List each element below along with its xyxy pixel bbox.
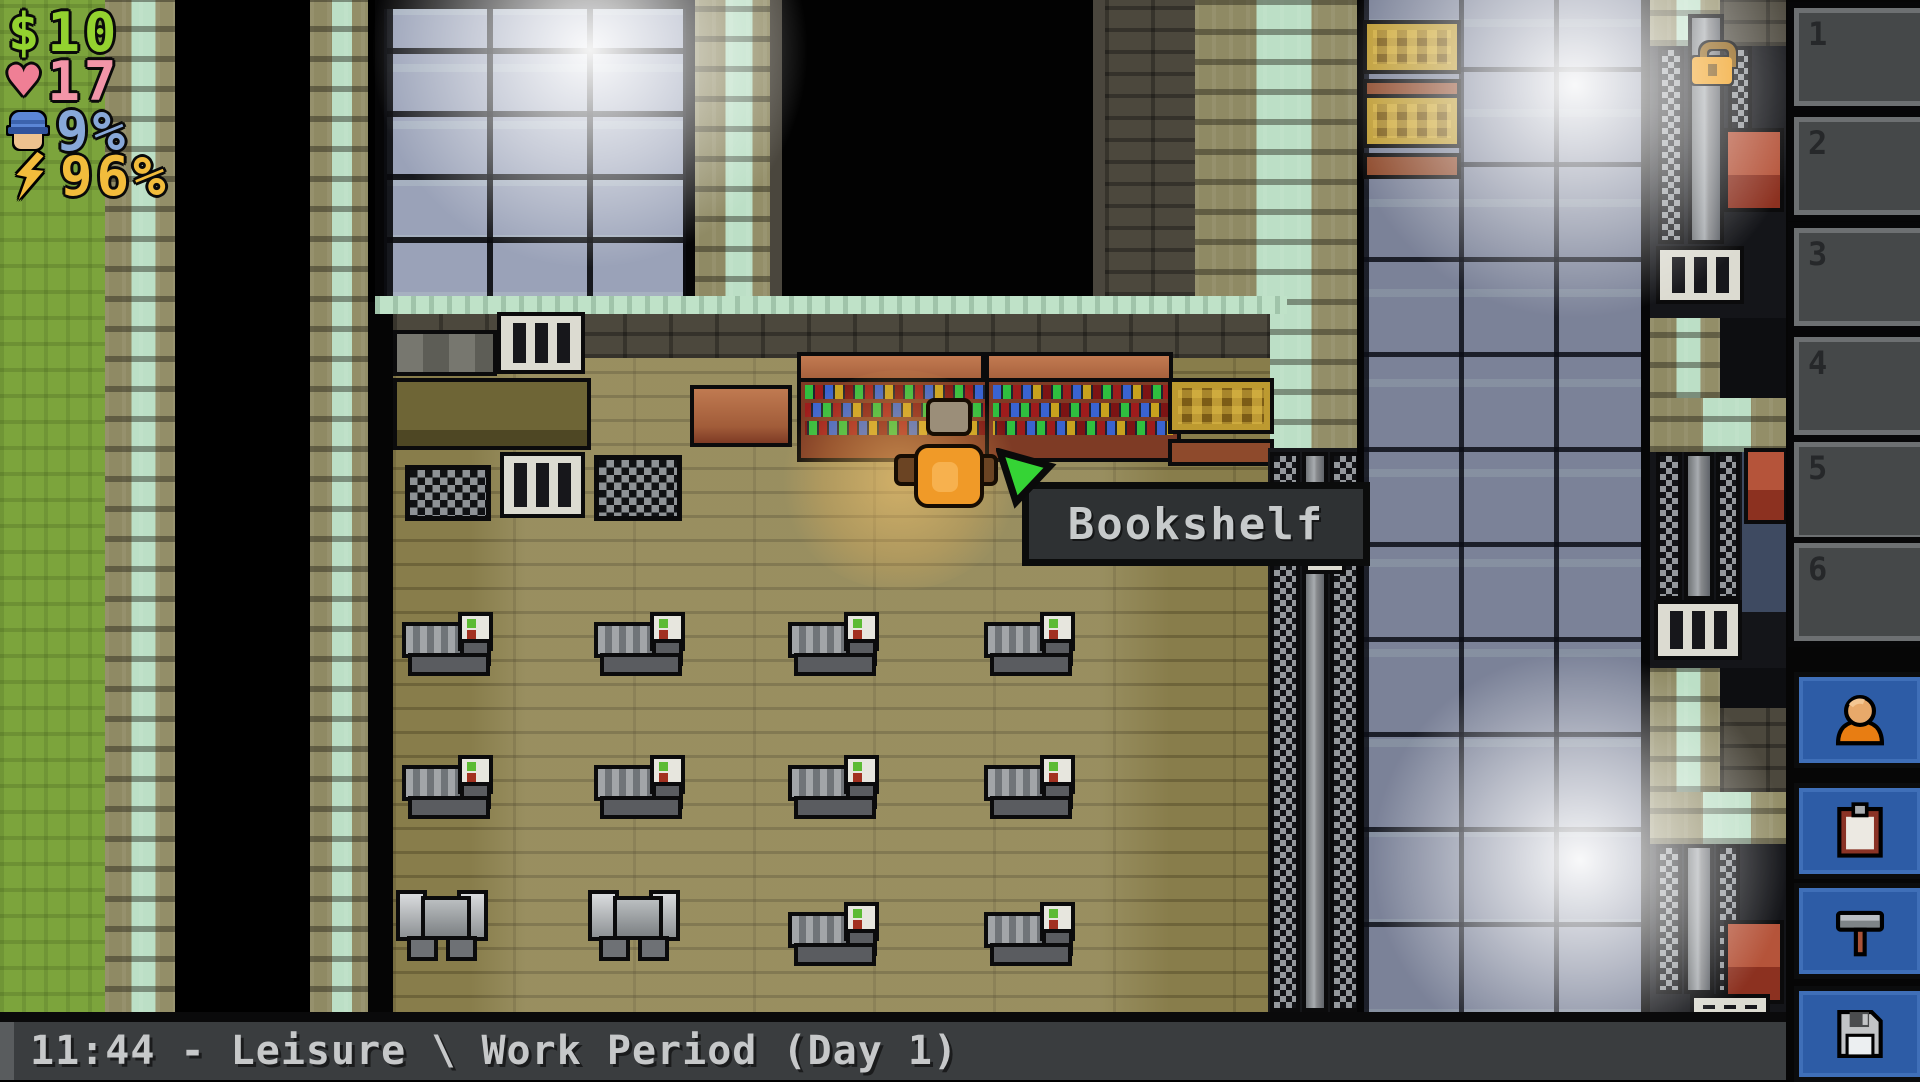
character-button[interactable] <box>1794 672 1920 768</box>
mesh-panel <box>405 465 491 521</box>
clipboard-icon <box>1829 800 1891 862</box>
status-bar-text: 11:44 - Leisure \ Work Period (Day 1) <box>30 1022 958 1080</box>
library-table-olive[interactable] <box>393 378 591 450</box>
gold-crate[interactable] <box>1168 378 1266 450</box>
slot-number: 5 <box>1808 449 1827 487</box>
library-desk[interactable] <box>984 902 1072 960</box>
hammer-icon <box>1829 900 1891 962</box>
slot-number: 3 <box>1808 235 1827 273</box>
game-map[interactable] <box>0 0 1920 1080</box>
mesh-panel <box>594 455 682 521</box>
floppy-icon <box>1829 1003 1891 1065</box>
inventory-slot-2[interactable]: 2 <box>1794 117 1920 215</box>
save-button[interactable] <box>1794 986 1920 1082</box>
slot-number: 2 <box>1808 124 1827 162</box>
cell-block-mid <box>1650 398 1790 668</box>
tooltip-label: Bookshelf <box>1068 499 1324 550</box>
library-desk[interactable] <box>594 612 682 670</box>
wall-mid-column <box>695 0 775 312</box>
cell-bed[interactable] <box>1724 128 1784 212</box>
inventory-slot-4[interactable]: 4 <box>1794 337 1920 435</box>
library-desk[interactable] <box>402 755 490 813</box>
wall-vent <box>1656 246 1744 304</box>
cell-bed[interactable] <box>1724 920 1784 1004</box>
prisoner-uniform <box>932 462 958 492</box>
inventory-slot-6[interactable]: 6 <box>1794 543 1920 641</box>
cell-door[interactable] <box>1684 844 1714 994</box>
journal-button[interactable] <box>1794 783 1920 879</box>
dark-room <box>770 0 1105 308</box>
slot-number: 4 <box>1808 344 1827 382</box>
bench-grinder[interactable] <box>396 884 488 960</box>
library-desk[interactable] <box>788 612 876 670</box>
cell-block-bottom <box>1650 792 1790 1022</box>
cell-gap <box>1650 318 1790 398</box>
cell-door[interactable] <box>1684 452 1714 600</box>
prisoner-hair <box>926 398 972 436</box>
library-desk[interactable] <box>788 755 876 813</box>
guard-icon <box>8 112 48 152</box>
library-side-table[interactable] <box>690 385 792 447</box>
inventory-sidebar: 1 2 3 4 5 6 <box>1786 0 1920 1080</box>
cell-bed[interactable] <box>1744 448 1788 524</box>
cursor-arrow-icon <box>996 448 1058 510</box>
library-desk[interactable] <box>984 612 1072 670</box>
slot-number: 1 <box>1808 15 1827 53</box>
wall-dark-column <box>1105 0 1195 318</box>
wall-left-inner <box>310 0 368 1022</box>
window-tiles <box>387 9 683 306</box>
gray-slab-wall <box>393 330 497 376</box>
status-bar: 11:44 - Leisure \ Work Period (Day 1) <box>0 1012 1920 1080</box>
library-desk[interactable] <box>788 902 876 960</box>
inventory-slot-3[interactable]: 3 <box>1794 228 1920 326</box>
status-bar-edge <box>0 1022 14 1080</box>
bolt-icon <box>8 152 52 202</box>
energy-value: 96% <box>60 150 170 204</box>
craft-button[interactable] <box>1794 883 1920 979</box>
heart-icon: ♥ <box>8 56 39 108</box>
tooltip: Bookshelf <box>1022 482 1370 566</box>
inventory-slot-5[interactable]: 5 <box>1794 442 1920 540</box>
player-prisoner[interactable] <box>898 414 994 510</box>
prisoner-icon <box>1829 689 1891 751</box>
slot-number: 6 <box>1808 550 1827 588</box>
wall-vent <box>1654 600 1742 660</box>
inventory-slot-1[interactable]: 1 <box>1794 8 1920 106</box>
wall-vent <box>500 452 585 518</box>
gold-crate[interactable] <box>1363 20 1453 90</box>
gold-crate[interactable] <box>1363 94 1453 164</box>
wall-vent <box>497 312 585 374</box>
cell-gap <box>1650 668 1790 792</box>
bench-grinder[interactable] <box>588 884 680 960</box>
library-desk[interactable] <box>402 612 490 670</box>
library-desk[interactable] <box>594 755 682 813</box>
library-desk[interactable] <box>984 755 1072 813</box>
library-left-edge <box>368 302 393 1022</box>
bookshelf[interactable] <box>985 352 1165 448</box>
padlock-icon <box>1692 42 1736 86</box>
window-room-frame <box>375 0 695 315</box>
corridor-right-edge <box>1641 0 1650 1022</box>
